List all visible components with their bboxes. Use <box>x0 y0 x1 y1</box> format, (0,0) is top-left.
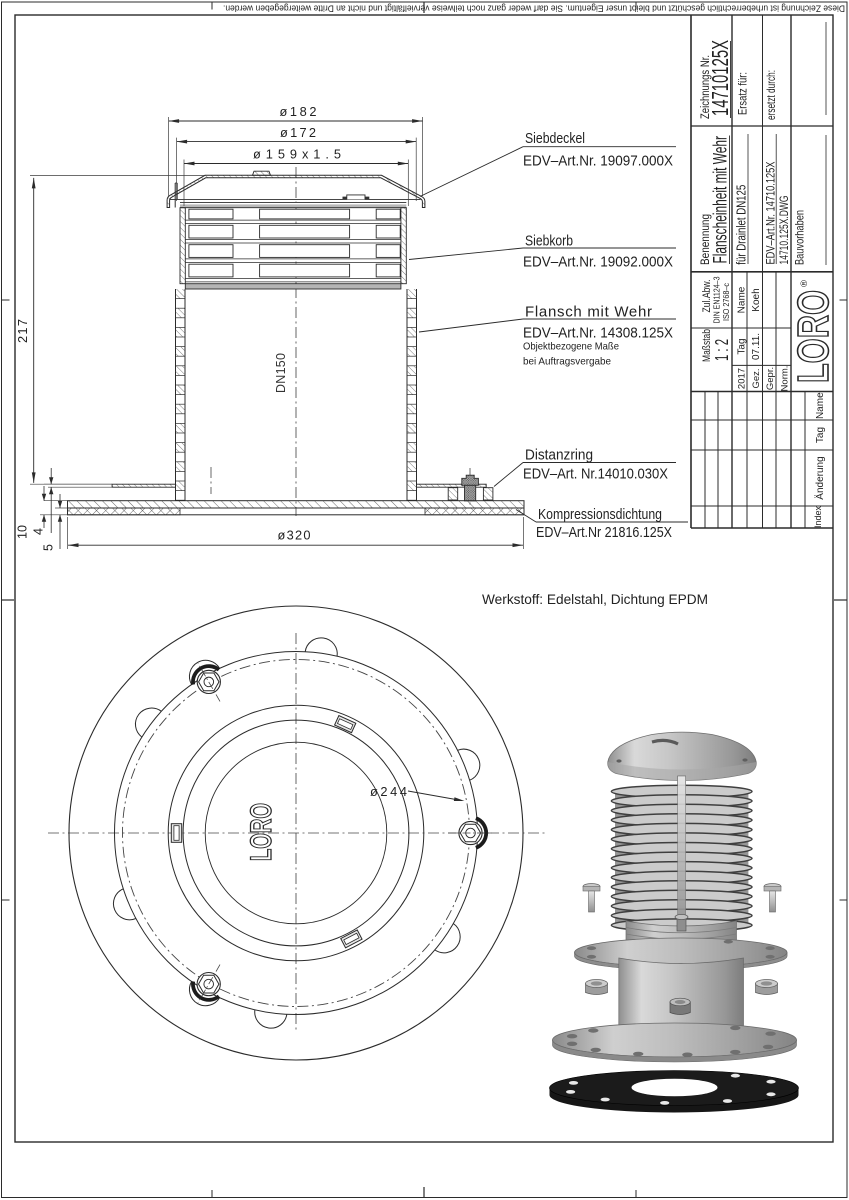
svg-text:14710.125X.DWG: 14710.125X.DWG <box>777 196 791 265</box>
svg-text:EDV–Art.Nr. 19092.000X: EDV–Art.Nr. 19092.000X <box>523 254 673 271</box>
svg-text:ISO 2768–c: ISO 2768–c <box>721 282 731 321</box>
svg-text:EDV–Art.Nr 21816.125X: EDV–Art.Nr 21816.125X <box>536 524 672 541</box>
svg-text:Werkstoff: Edelstahl, Dichtung: Werkstoff: Edelstahl, Dichtung EPDM <box>482 591 708 607</box>
svg-text:14710125X: 14710125X <box>707 40 733 116</box>
svg-text:Siebkorb: Siebkorb <box>525 233 573 250</box>
svg-text:Distanzring: Distanzring <box>525 447 593 464</box>
svg-text:Gepr.: Gepr. <box>765 367 776 390</box>
svg-text:EDV–Art.Nr. 14308.125X: EDV–Art.Nr. 14308.125X <box>523 325 673 342</box>
svg-text:DIN EN1124–3: DIN EN1124–3 <box>712 276 722 323</box>
svg-text:217: 217 <box>15 319 30 343</box>
svg-text:Index: Index <box>813 505 823 528</box>
svg-text:Gez.: Gez. <box>751 368 762 388</box>
svg-text:®: ® <box>799 280 810 287</box>
svg-text:Siebdeckel: Siebdeckel <box>525 130 585 147</box>
svg-text:Flanscheinheit mit Wehr: Flanscheinheit mit Wehr <box>711 136 732 264</box>
svg-text:EDV–Art.Nr. 14710.125X: EDV–Art.Nr. 14710.125X <box>763 162 777 265</box>
svg-text:2017: 2017 <box>737 368 748 389</box>
svg-text:ersetzt durch:: ersetzt durch: <box>764 70 778 120</box>
svg-text:07.11.: 07.11. <box>751 333 762 360</box>
svg-text:DN150: DN150 <box>274 353 288 393</box>
svg-text:Diese Zeichnung ist urheberrec: Diese Zeichnung ist urheberrechtlich ges… <box>223 4 845 14</box>
svg-text:LORO: LORO <box>245 803 278 861</box>
svg-text:Objektbezogene Maße: Objektbezogene Maße <box>523 341 619 353</box>
svg-text:Tag: Tag <box>737 338 748 354</box>
svg-text:Bauvorhaben: Bauvorhaben <box>793 210 807 265</box>
svg-text:ø159x1.5: ø159x1.5 <box>253 147 341 162</box>
svg-text:Name: Name <box>815 392 826 419</box>
svg-text:Änderung: Änderung <box>814 456 826 499</box>
svg-text:EDV–Art.Nr. 19097.000X: EDV–Art.Nr. 19097.000X <box>523 153 673 170</box>
svg-text:1 : 2: 1 : 2 <box>712 339 732 361</box>
svg-text:5: 5 <box>42 544 56 551</box>
svg-text:Koeh: Koeh <box>751 288 762 311</box>
svg-text:Flansch mit Wehr: Flansch mit Wehr <box>525 304 652 321</box>
svg-text:Name: Name <box>737 286 748 313</box>
svg-text:4: 4 <box>31 528 45 535</box>
svg-text:Kompressionsdichtung: Kompressionsdichtung <box>538 506 662 523</box>
svg-text:LORO: LORO <box>789 290 838 383</box>
svg-text:10: 10 <box>16 525 30 539</box>
svg-text:für Drainlet DN125: für Drainlet DN125 <box>734 185 749 265</box>
svg-text:Ersatz für:: Ersatz für: <box>736 72 750 115</box>
svg-text:ø320: ø320 <box>278 528 311 543</box>
svg-text:bei Auftragsvergabe: bei Auftragsvergabe <box>523 356 611 368</box>
svg-text:Tag: Tag <box>815 427 826 443</box>
svg-text:EDV–Art. Nr.14010.030X: EDV–Art. Nr.14010.030X <box>523 466 668 483</box>
